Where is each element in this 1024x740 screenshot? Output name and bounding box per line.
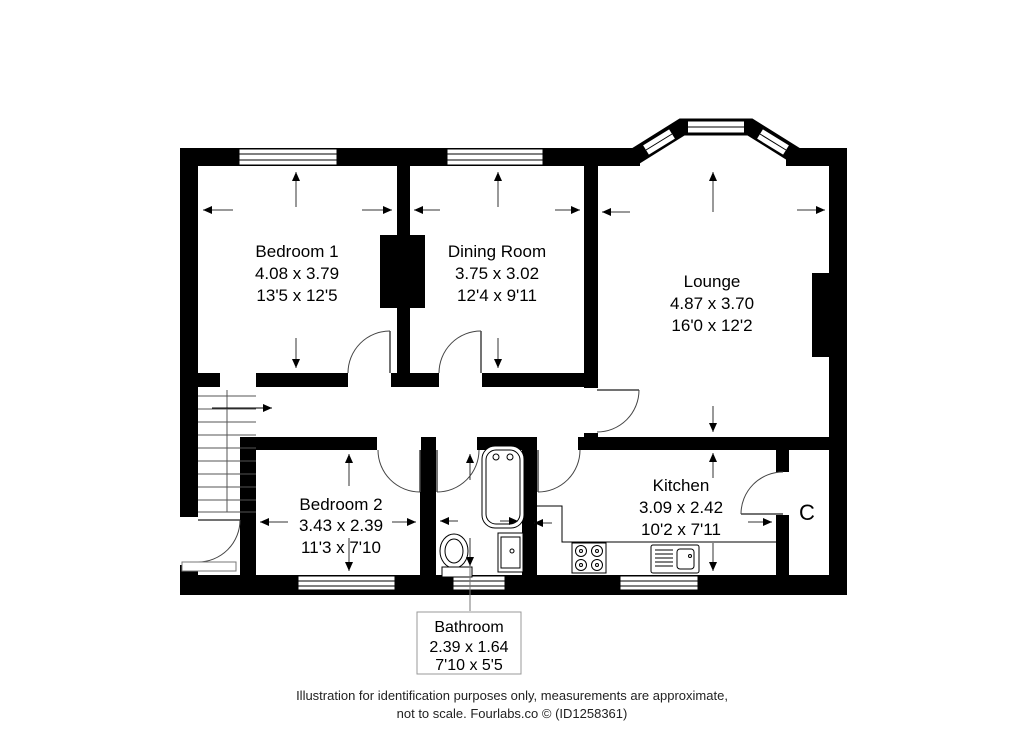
lounge-imperial: 16'0 x 12'2 xyxy=(671,316,752,335)
bedroom1-imperial: 13'5 x 12'5 xyxy=(256,286,337,305)
footer-disclaimer-line2: not to scale. Fourlabs.co © (ID1258361) xyxy=(397,706,628,721)
wall-bedroom2-bathroom xyxy=(420,437,436,575)
room-label-lounge: Lounge 4.87 x 3.70 16'0 x 12'2 xyxy=(670,272,754,335)
bedroom1-metric: 4.08 x 3.79 xyxy=(255,264,339,283)
hob xyxy=(572,543,606,573)
bathroom-imperial: 7'10 x 5'5 xyxy=(435,657,503,674)
window-kitchen xyxy=(620,576,698,590)
window-dining-room xyxy=(447,149,543,165)
chimney-breast-bedroom1 xyxy=(380,235,425,308)
wall-bottom xyxy=(180,575,847,595)
door-lounge xyxy=(597,390,639,432)
bedroom1-name: Bedroom 1 xyxy=(255,242,338,261)
lounge-metric: 4.87 x 3.70 xyxy=(670,294,754,313)
dining-metric: 3.75 x 3.02 xyxy=(455,264,539,283)
bathroom-name: Bathroom xyxy=(434,619,503,636)
door-bathroom xyxy=(437,450,479,492)
dining-name: Dining Room xyxy=(448,242,546,261)
wall-stairs-bedroom2 xyxy=(240,437,256,575)
lounge-name: Lounge xyxy=(684,272,741,291)
floorplan-canvas: Bedroom 1 4.08 x 3.79 13'5 x 12'5 Dining… xyxy=(0,0,1024,740)
wall-right xyxy=(829,148,847,595)
door-bedroom2 xyxy=(378,450,420,492)
window-bedroom2 xyxy=(298,576,395,590)
window-bedroom1 xyxy=(239,149,337,165)
bedroom2-metric: 3.43 x 2.39 xyxy=(299,516,383,535)
toilet xyxy=(440,534,472,577)
dining-imperial: 12'4 x 9'11 xyxy=(457,286,537,305)
room-label-bedroom1: Bedroom 1 4.08 x 3.79 13'5 x 12'5 xyxy=(255,242,339,305)
door-bedroom1 xyxy=(348,331,390,373)
room-label-dining-room: Dining Room 3.75 x 3.02 12'4 x 9'11 xyxy=(448,242,546,305)
bedroom2-imperial: 11'3 x 7'10 xyxy=(301,538,381,557)
kitchen-imperial: 10'2 x 7'11 xyxy=(641,520,721,539)
bathroom-metric: 2.39 x 1.64 xyxy=(429,639,508,656)
kitchen-metric: 3.09 x 2.42 xyxy=(639,498,723,517)
cupboard-label: C xyxy=(799,500,815,525)
footer-disclaimer-line1: Illustration for identification purposes… xyxy=(296,688,728,703)
door-dining-room xyxy=(439,331,481,373)
staircase xyxy=(198,390,272,512)
kitchen-name: Kitchen xyxy=(653,476,710,495)
bedroom2-name: Bedroom 2 xyxy=(299,495,382,514)
bathroom-callout: Bathroom 2.39 x 1.64 7'10 x 5'5 xyxy=(417,612,521,674)
window-bathroom xyxy=(453,576,505,590)
chimney-breast-lounge xyxy=(812,273,847,357)
floorplan-page: Bedroom 1 4.08 x 3.79 13'5 x 12'5 Dining… xyxy=(0,0,1024,740)
sink xyxy=(651,545,699,573)
room-label-bedroom2: Bedroom 2 3.43 x 2.39 11'3 x 7'10 xyxy=(299,495,383,557)
bay-window xyxy=(634,127,798,157)
room-label-kitchen: Kitchen 3.09 x 2.42 10'2 x 7'11 xyxy=(639,476,723,539)
door-kitchen xyxy=(538,450,580,492)
bathtub xyxy=(482,446,524,528)
basin xyxy=(498,533,523,572)
wall-left xyxy=(180,148,198,575)
